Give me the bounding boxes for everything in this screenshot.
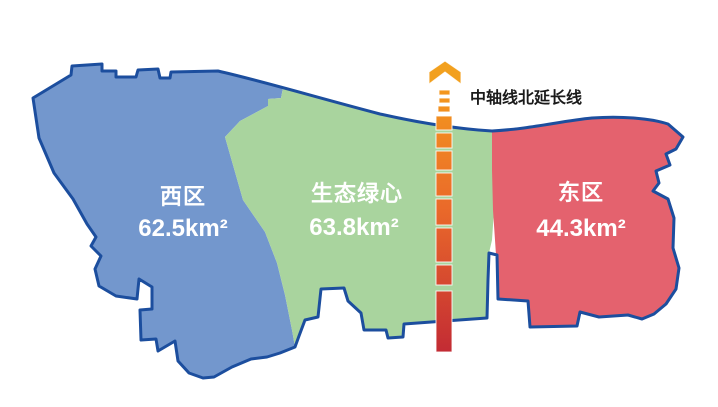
- axis-dash: [436, 133, 452, 148]
- axis-dash: [436, 116, 452, 130]
- axis-dash: [436, 173, 452, 196]
- axis-arrow-icon: [429, 61, 461, 84]
- axis-dash: [436, 265, 452, 285]
- region-west-name-label: 西区: [160, 184, 206, 209]
- map-canvas: 中轴线北延长线 西区 62.5km² 生态绿心 63.8km² 东区 44.3k…: [0, 0, 718, 407]
- axis-dash: [439, 98, 450, 103]
- region-west-area-label: 62.5km²: [138, 215, 227, 242]
- region-east-area-label: 44.3km²: [536, 215, 625, 242]
- axis-dash: [438, 106, 450, 112]
- axis-dash: [436, 199, 452, 225]
- region-green-heart-name-label: 生态绿心: [311, 181, 403, 206]
- region-green-heart-area-label: 63.8km²: [309, 214, 398, 241]
- axis-dash: [436, 151, 452, 170]
- axis-dash: [436, 228, 452, 262]
- axis-label: 中轴线北延长线: [470, 88, 582, 107]
- axis-dash: [439, 90, 450, 95]
- region-east-name-label: 东区: [558, 180, 604, 205]
- axis-dash: [436, 291, 452, 352]
- planning-map: 中轴线北延长线 西区 62.5km² 生态绿心 63.8km² 东区 44.3k…: [0, 0, 718, 407]
